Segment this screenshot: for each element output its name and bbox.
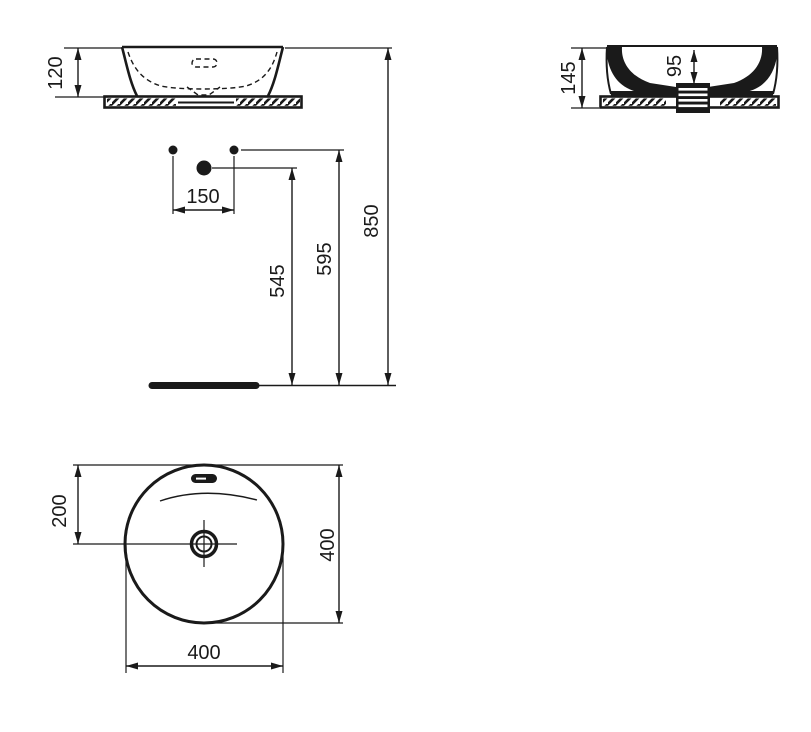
side-section-view: 145 95 bbox=[558, 46, 779, 113]
dimension-label-145: 145 bbox=[558, 61, 580, 94]
dimension-label-200: 200 bbox=[49, 494, 71, 527]
front-inner-bowl-dashed bbox=[128, 52, 277, 95]
dimension-95 bbox=[683, 50, 706, 85]
front-basin-outline bbox=[122, 47, 283, 96]
side-countertop-hatch-right bbox=[720, 98, 776, 105]
supply-point-right bbox=[230, 146, 239, 155]
dimension-label-400-horizontal: 400 bbox=[187, 642, 220, 664]
dimension-label-545: 545 bbox=[267, 264, 289, 297]
washbasin-dimension-drawing: 120 1 bbox=[0, 0, 811, 732]
dimension-label-400-vertical: 400 bbox=[317, 528, 339, 561]
front-overflow-slot-dashed bbox=[192, 59, 217, 67]
front-countertop-hatch-right bbox=[236, 98, 300, 105]
plan-inner-edge-arc bbox=[160, 493, 257, 501]
dimension-label-95: 95 bbox=[664, 55, 686, 77]
side-drain-stack bbox=[676, 83, 710, 113]
dimension-label-120: 120 bbox=[45, 56, 67, 89]
dimension-label-150: 150 bbox=[186, 186, 219, 208]
plan-view: 200 400 400 bbox=[49, 465, 343, 673]
front-countertop bbox=[105, 97, 302, 108]
technical-drawing-page: 120 1 bbox=[0, 0, 811, 732]
side-countertop-hatch-left bbox=[603, 98, 666, 105]
front-view: 120 bbox=[45, 47, 302, 108]
front-countertop-hatch-left bbox=[107, 98, 176, 105]
dimension-label-595: 595 bbox=[314, 242, 336, 275]
waste-outlet-point bbox=[197, 161, 212, 176]
dimension-label-850: 850 bbox=[361, 204, 383, 237]
plan-overflow-slot bbox=[191, 474, 217, 483]
supply-point-left bbox=[169, 146, 178, 155]
